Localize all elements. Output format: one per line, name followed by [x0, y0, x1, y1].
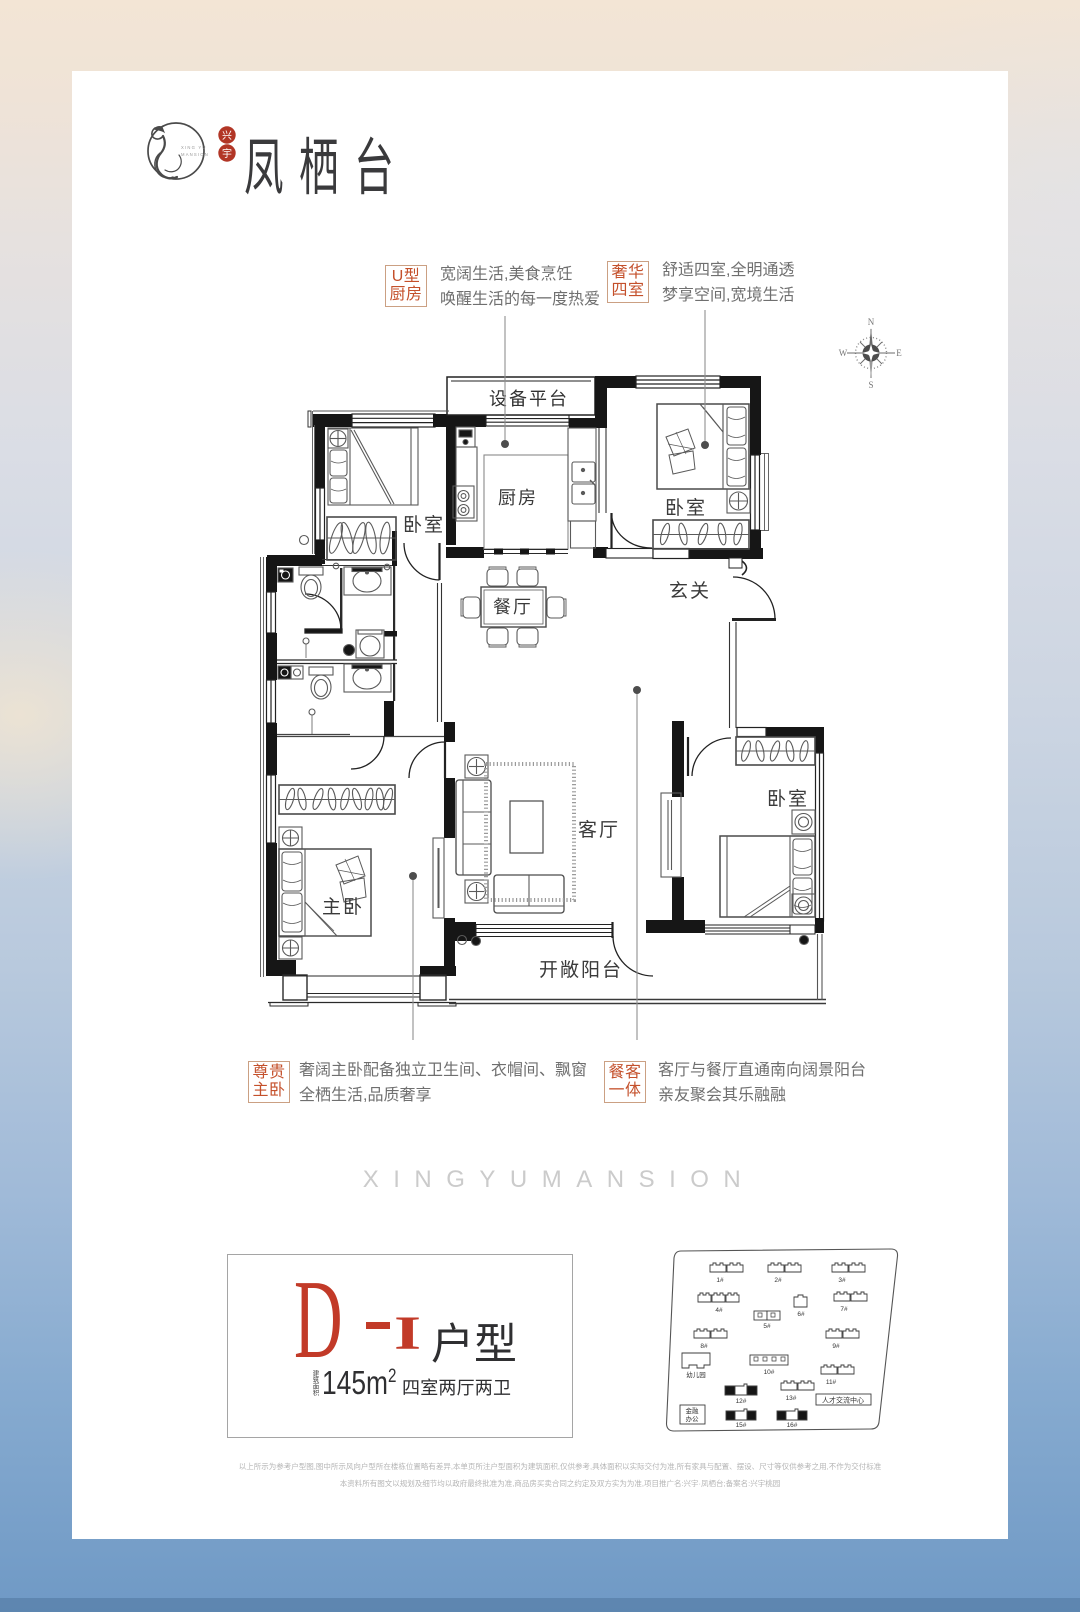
- svg-text:13#: 13#: [786, 1395, 797, 1402]
- svg-text:客厅: 客厅: [578, 819, 620, 841]
- svg-text:4#: 4#: [715, 1307, 723, 1314]
- svg-text:7#: 7#: [840, 1306, 848, 1313]
- svg-text:卧室: 卧室: [403, 514, 445, 536]
- svg-text:5#: 5#: [763, 1323, 771, 1330]
- svg-text:16#: 16#: [787, 1422, 798, 1429]
- svg-text:9#: 9#: [832, 1343, 840, 1350]
- svg-text:15#: 15#: [736, 1422, 747, 1429]
- svg-text:人才交流中心: 人才交流中心: [822, 1396, 864, 1405]
- svg-text:餐厅: 餐厅: [493, 597, 533, 617]
- svg-text:XING YU: XING YU: [181, 145, 207, 150]
- svg-text:11#: 11#: [826, 1379, 837, 1386]
- svg-text:12#: 12#: [736, 1398, 747, 1405]
- svg-text:幼儿园: 幼儿园: [686, 1370, 706, 1379]
- svg-text:W: W: [839, 348, 848, 358]
- svg-text:开敞阳台: 开敞阳台: [539, 959, 623, 981]
- svg-text:主卧: 主卧: [322, 896, 364, 918]
- svg-text:6#: 6#: [797, 1311, 805, 1318]
- svg-text:10#: 10#: [764, 1369, 775, 1376]
- svg-text:卧室: 卧室: [665, 497, 707, 519]
- svg-text:兴: 兴: [222, 130, 232, 142]
- svg-text:S: S: [868, 380, 873, 390]
- svg-text:卧室: 卧室: [767, 788, 809, 810]
- svg-text:设备平台: 设备平台: [489, 389, 569, 409]
- svg-text:2#: 2#: [774, 1277, 782, 1284]
- svg-text:厨房: 厨房: [498, 488, 538, 508]
- svg-text:金融: 金融: [686, 1406, 700, 1415]
- svg-text:N: N: [868, 317, 875, 327]
- svg-text:1#: 1#: [716, 1277, 724, 1284]
- svg-text:玄关: 玄关: [669, 580, 711, 602]
- svg-text:MANSION: MANSION: [181, 152, 209, 157]
- svg-text:办公: 办公: [686, 1414, 700, 1423]
- svg-text:8#: 8#: [700, 1343, 708, 1350]
- svg-text:E: E: [896, 348, 902, 358]
- svg-text:3#: 3#: [838, 1277, 846, 1284]
- svg-text:宇: 宇: [222, 147, 232, 160]
